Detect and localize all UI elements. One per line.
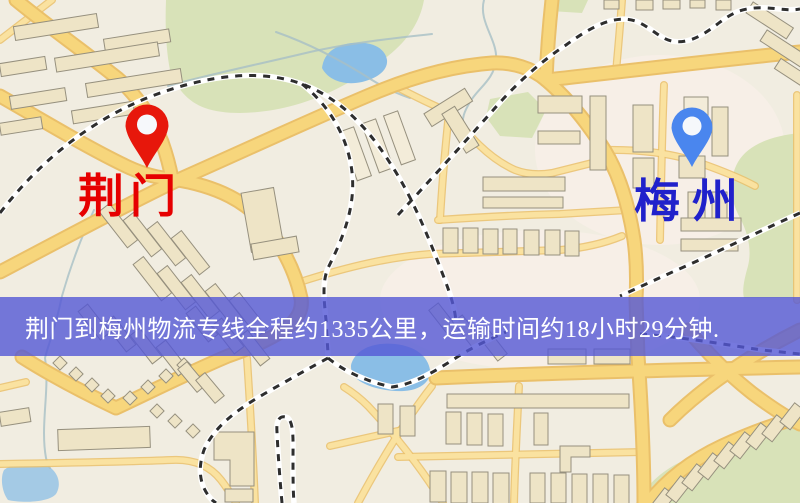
map-canvas xyxy=(0,0,800,503)
origin-pin-icon[interactable] xyxy=(123,100,171,170)
logistics-route-map: 荆门 梅州 荆门到梅州物流专线全程约1335公里，运输时间约18小时29分钟. xyxy=(0,0,800,503)
banner-text: 荆门到梅州物流专线全程约1335公里，运输时间约18小时29分钟. xyxy=(25,309,720,344)
destination-pin-icon[interactable] xyxy=(669,103,715,169)
destination-city-label: 梅州 xyxy=(634,179,750,225)
park-small-mid xyxy=(486,92,546,138)
origin-city-label: 荆门 xyxy=(78,174,182,220)
info-banner: 荆门到梅州物流专线全程约1335公里，运输时间约18小时29分钟. xyxy=(0,297,800,356)
